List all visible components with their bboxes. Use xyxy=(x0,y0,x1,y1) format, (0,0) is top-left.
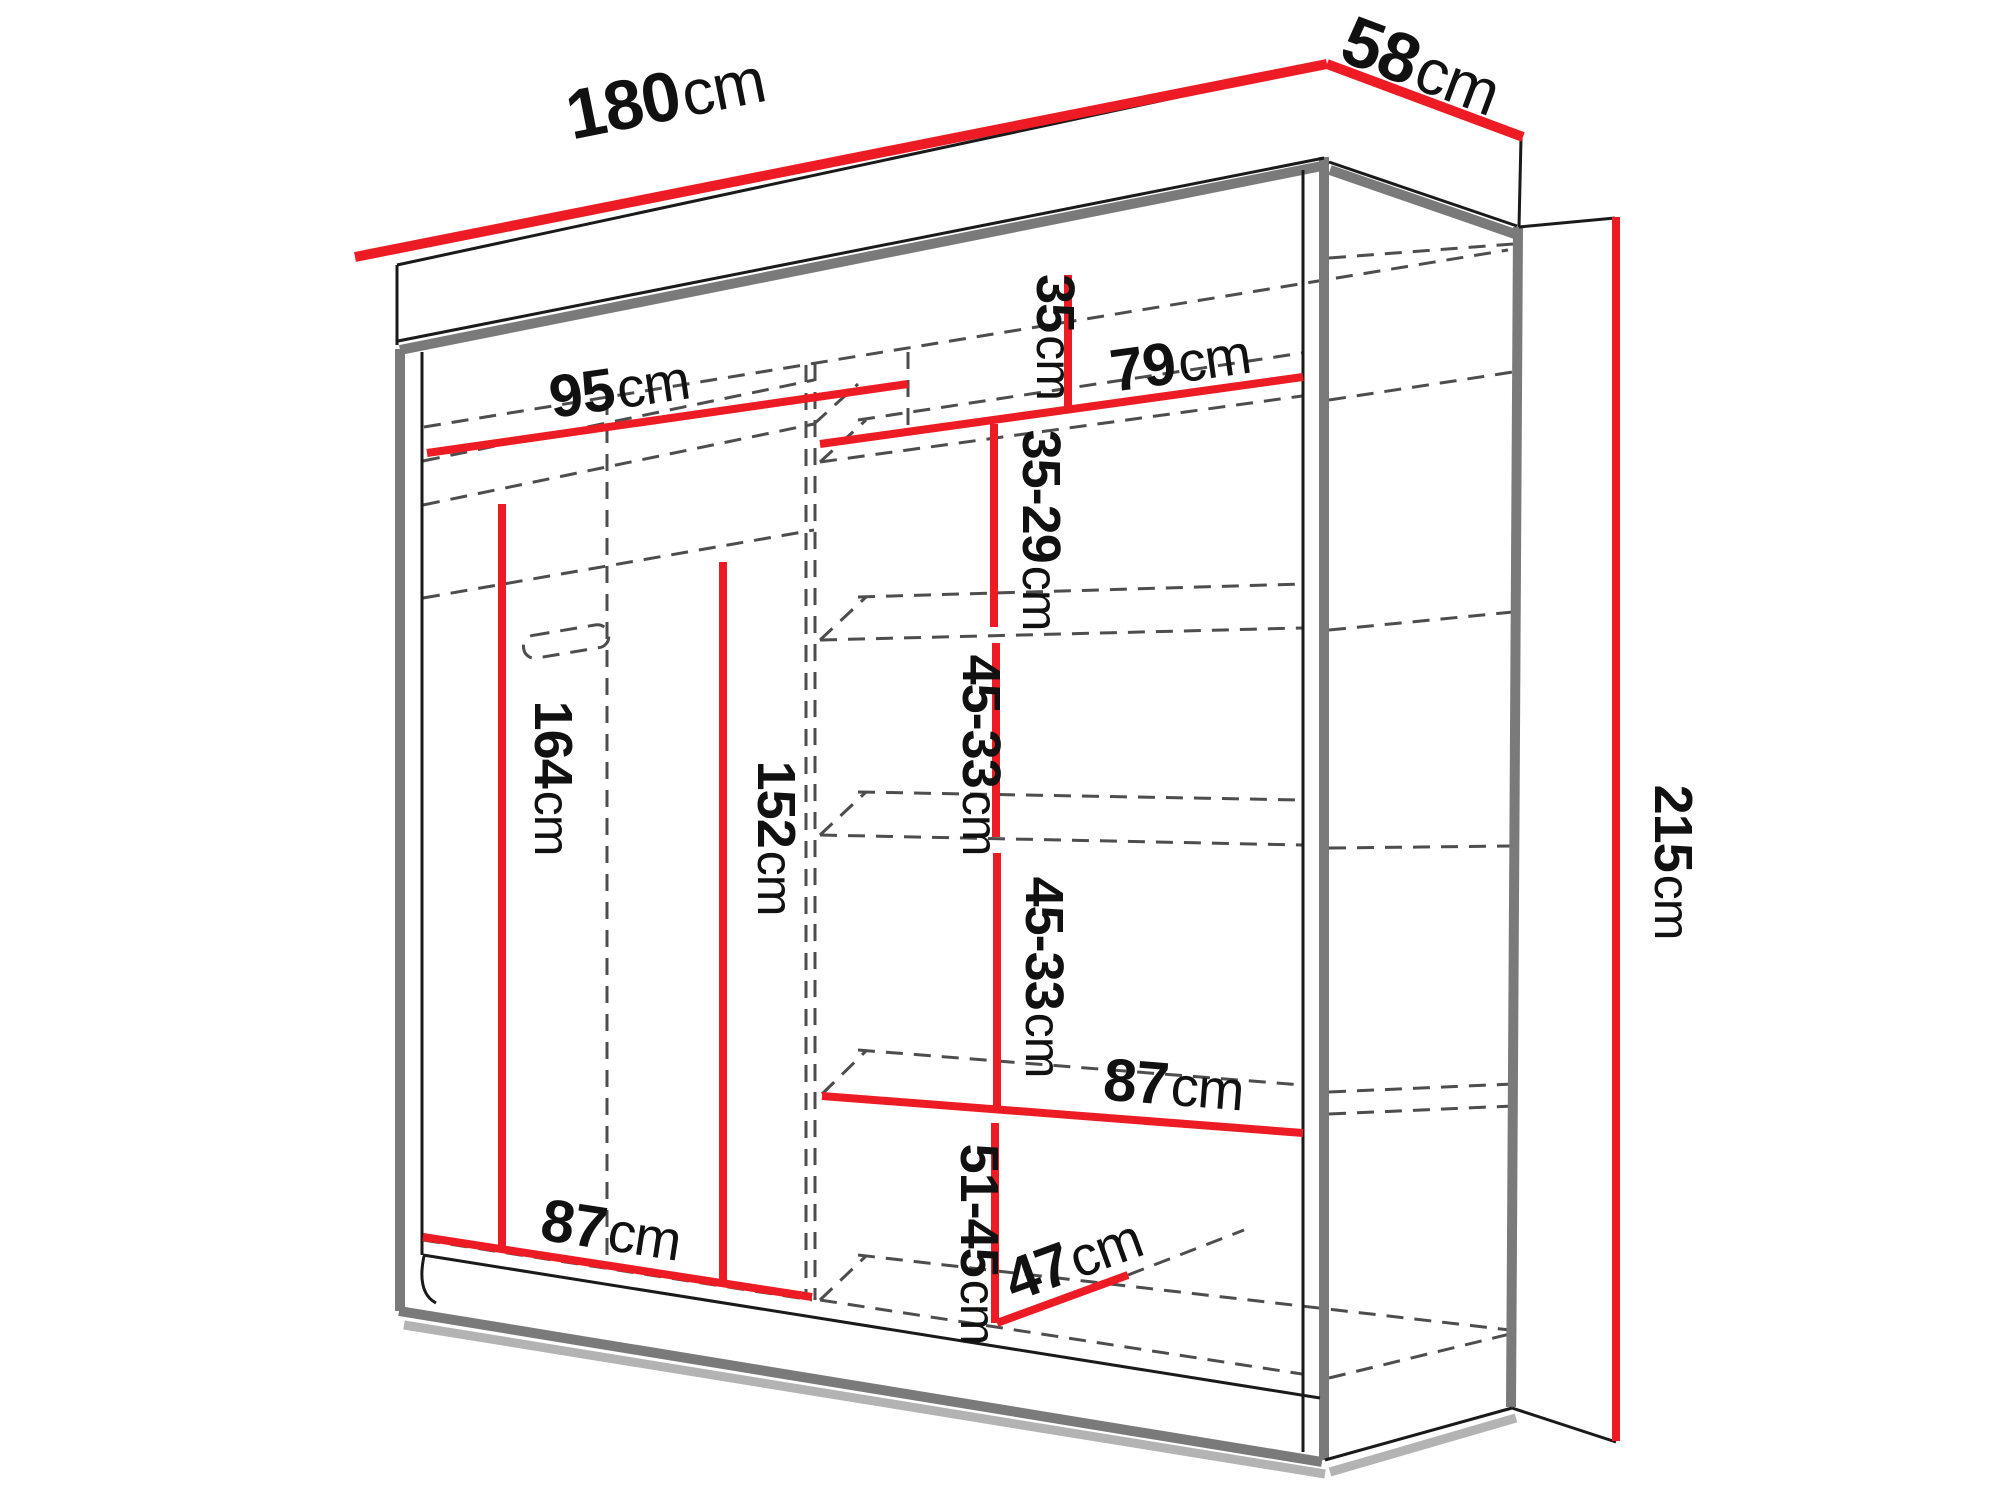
trim-back-right-edge xyxy=(1511,227,1518,1407)
left-hanging-height-label: 164cm xyxy=(523,701,583,856)
middle-hanging-height-label: 152cm xyxy=(746,761,806,916)
diagram-canvas: 180cm 58cm 215cm 95cm 35cm 79cm 35-29cm … xyxy=(0,0,2000,1500)
right-gap-mid-1-label: 45-33cm xyxy=(951,655,1011,856)
wardrobe-dimension-diagram: 180cm 58cm 215cm 95cm 35cm 79cm 35-29cm … xyxy=(0,0,2000,1500)
right-top-height-label: 35cm xyxy=(1025,274,1085,400)
overall-height-label: 215cm xyxy=(1643,785,1703,940)
right-gap-bottom-label: 51-45cm xyxy=(949,1144,1009,1345)
right-shelf-width-label: 87cm xyxy=(1101,1046,1246,1124)
right-gap-mid-2-label: 45-33cm xyxy=(1014,877,1074,1078)
right-gap-upper-label: 35-29cm xyxy=(1011,430,1071,631)
top-panel-back-edge xyxy=(1519,138,1521,227)
